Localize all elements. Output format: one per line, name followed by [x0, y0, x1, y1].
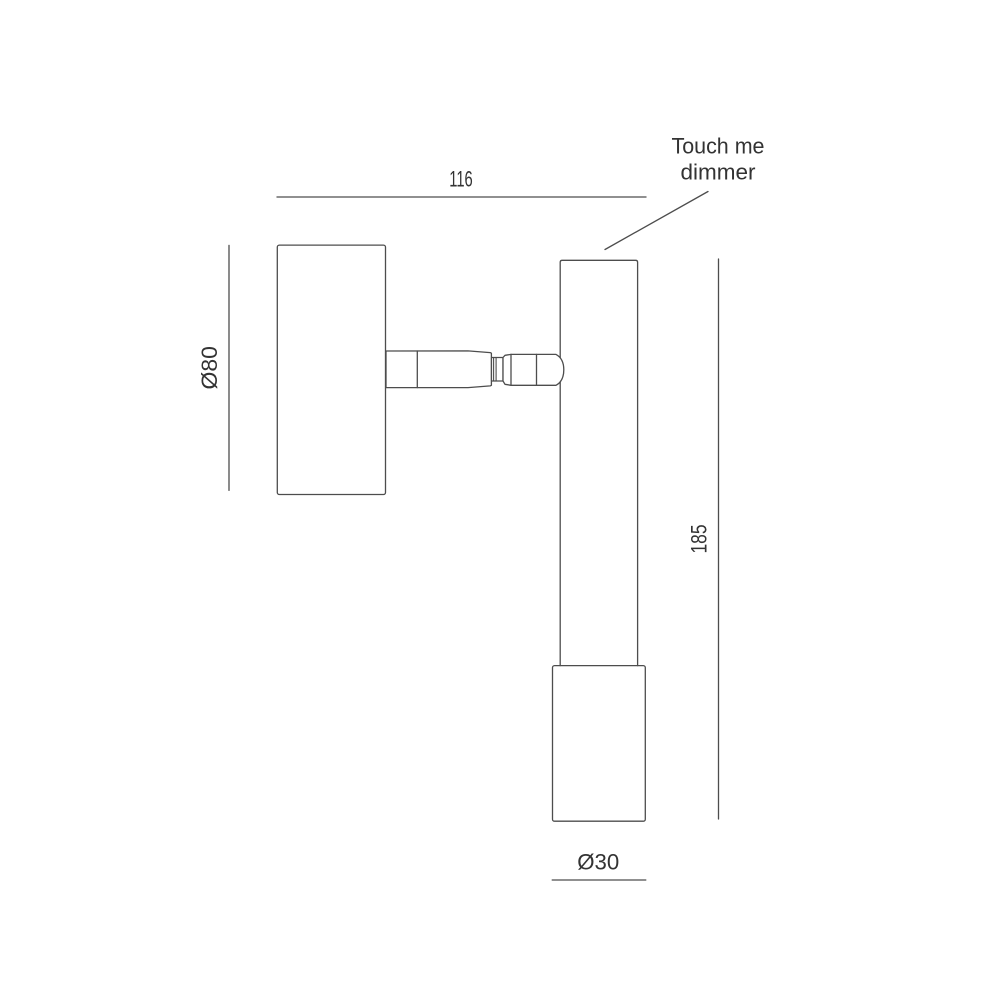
- svg-text:185: 185: [687, 525, 712, 554]
- svg-text:Ø30: Ø30: [577, 850, 619, 875]
- svg-text:dimmer: dimmer: [681, 160, 757, 185]
- svg-text:Ø80: Ø80: [197, 346, 222, 390]
- svg-text:116: 116: [449, 166, 473, 191]
- svg-text:Touch me: Touch me: [672, 134, 765, 159]
